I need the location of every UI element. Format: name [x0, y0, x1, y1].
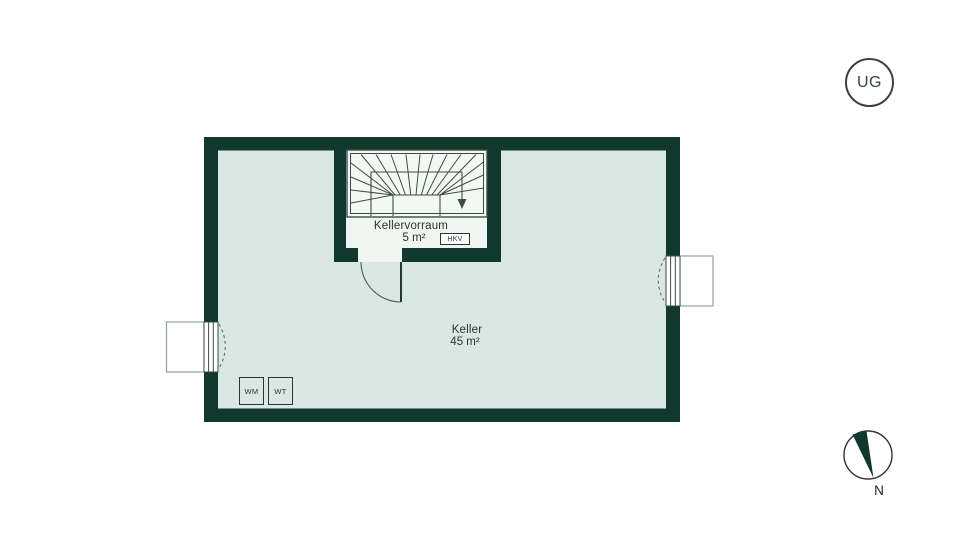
level-badge-text: UG — [857, 74, 882, 92]
floor-plan-drawing — [0, 0, 953, 556]
staircase — [347, 150, 487, 217]
window-right — [658, 256, 713, 306]
kellervorraum-label: Kellervorraum — [341, 220, 481, 232]
window-left-lightwell — [167, 322, 205, 372]
keller-label: Keller — [397, 324, 537, 336]
window-left — [167, 322, 226, 372]
north-label: N — [859, 483, 899, 498]
keller-area-label: 45 m² — [395, 336, 535, 348]
hkv-box: HKV — [440, 233, 470, 245]
door-opening — [358, 248, 402, 262]
washing-machine-box: WM — [239, 377, 264, 405]
window-right-lightwell — [680, 256, 713, 306]
level-badge: UG — [845, 58, 894, 107]
dryer-box: WT — [268, 377, 293, 405]
north-compass — [844, 431, 892, 479]
window-right-frame — [666, 256, 680, 306]
floor-plan-canvas: Kellervorraum 5 m² HKV Keller 45 m² WM W… — [0, 0, 953, 556]
window-left-frame — [204, 322, 218, 372]
